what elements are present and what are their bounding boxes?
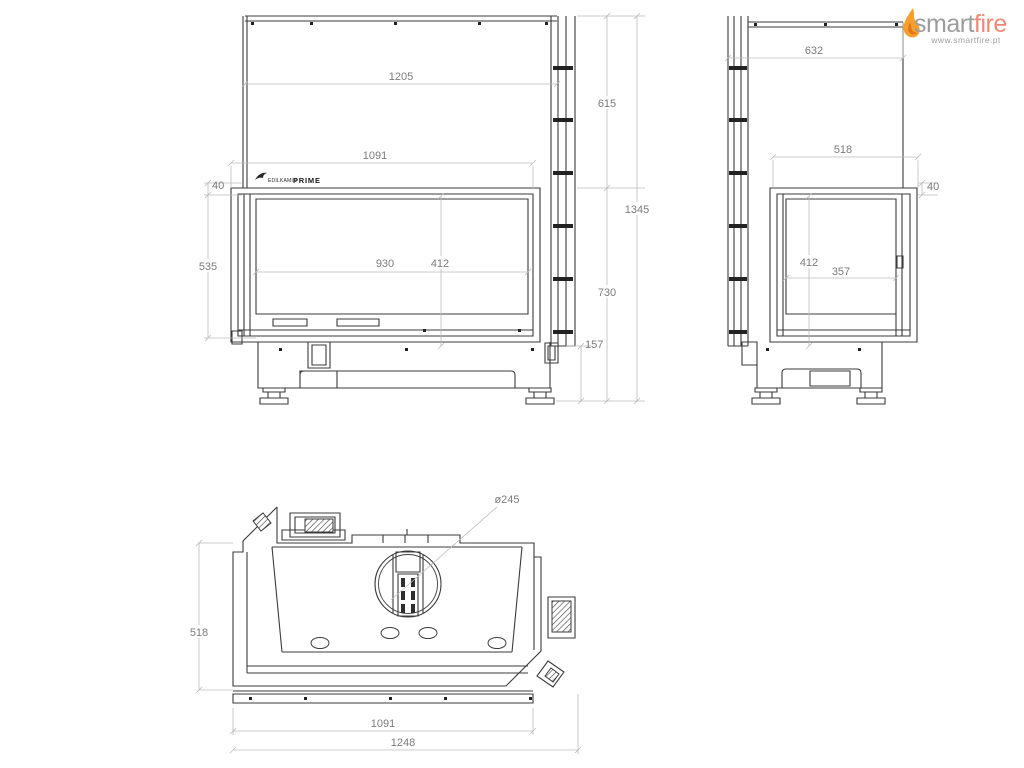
dim-side-inner-height: 412: [800, 257, 818, 269]
dim-front-opening-width: 1091: [363, 150, 387, 162]
dim-front-inner-height: 412: [431, 258, 449, 270]
flue-damper-slots: [401, 578, 415, 613]
dim-side-opening-width: 518: [834, 144, 852, 156]
technical-drawing: EDILKAMIN PRIME 1205 1091 930 412 535 40…: [0, 0, 1024, 768]
front-view: EDILKAMIN PRIME 1205 1091 930 412 535 40…: [194, 13, 653, 404]
side-view-dimension-lines: [725, 22, 938, 349]
dim-side-panel-width: 632: [805, 45, 823, 57]
product-mark: EDILKAMIN PRIME: [255, 173, 321, 185]
dim-front-panel-height: 615: [598, 98, 616, 110]
product-mark-model: PRIME: [293, 176, 321, 185]
hearth-hole: [381, 628, 399, 639]
smartfire-logo: smart fire www.smartfire.pt: [903, 8, 1006, 45]
dim-front-frame-offset: 40: [212, 180, 224, 192]
logo-url: www.smartfire.pt: [930, 35, 1000, 45]
top-view-hatch-corner-front: [545, 668, 559, 682]
top-view: ø245 518 1091 1248: [185, 494, 581, 754]
hearth-hole: [311, 638, 329, 649]
logo-word-primary: smart: [914, 10, 975, 38]
dim-front-glass-width: 930: [376, 258, 394, 270]
flue-outlet-inner: [379, 555, 438, 614]
side-view-screws-hinges: [729, 23, 898, 351]
dim-side-glass-width: 357: [832, 266, 850, 278]
top-view-dimension-lines: [196, 507, 581, 754]
front-view-label-masks: [194, 96, 653, 298]
hearth-hole: [419, 628, 437, 639]
dim-front-base-height: 157: [585, 339, 603, 351]
technical-drawing-sheet: EDILKAMIN PRIME 1205 1091 930 412 535 40…: [0, 0, 1024, 768]
dim-front-body-height: 730: [598, 287, 616, 299]
product-mark-icon: [255, 173, 267, 180]
hearth-hole: [488, 638, 506, 649]
top-view-screws: [249, 697, 532, 700]
front-view-dimension-lines: [204, 13, 645, 404]
dim-top-total-width: 1248: [391, 737, 415, 749]
side-view-structure: [728, 16, 917, 404]
dim-top-opening-width: 1091: [371, 718, 395, 730]
dim-top-depth: 518: [190, 627, 208, 639]
side-view: 632 518 40 412 357: [725, 16, 939, 404]
dim-top-flue-diameter: ø245: [494, 494, 519, 506]
dim-front-panel-width: 1205: [389, 71, 413, 83]
dim-front-total-height: 1345: [625, 204, 649, 216]
flue-outlet-outer: [375, 551, 441, 617]
dim-side-frame-offset: 40: [927, 181, 939, 193]
logo-word-secondary: fire: [974, 10, 1007, 38]
dim-front-glass-height: 535: [199, 261, 217, 273]
top-view-hatch-side-latch: [552, 601, 571, 632]
top-view-hatch-bracket: [305, 519, 333, 532]
